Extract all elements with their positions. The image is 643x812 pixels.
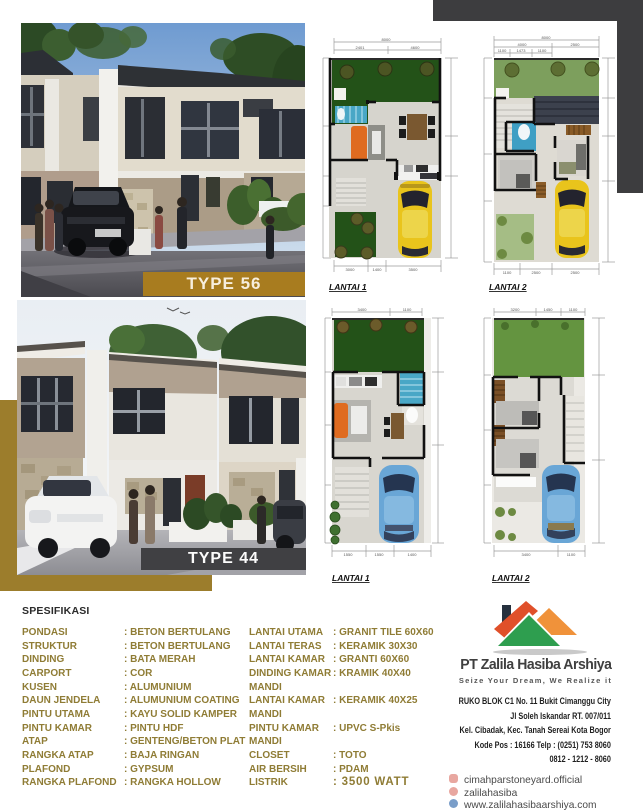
svg-text:1100: 1100 xyxy=(538,48,547,53)
svg-text:1100: 1100 xyxy=(403,307,412,312)
svg-text:3500: 3500 xyxy=(409,267,419,272)
svg-text:2500: 2500 xyxy=(571,270,581,275)
svg-text:3000: 3000 xyxy=(346,267,356,272)
svg-text:1473: 1473 xyxy=(517,48,527,53)
svg-text:2500: 2500 xyxy=(532,270,542,275)
svg-text:LANTAI 2: LANTAI 2 xyxy=(489,282,527,292)
svg-text:3400: 3400 xyxy=(522,552,532,557)
svg-text:3200: 3200 xyxy=(511,307,521,312)
svg-text:1100: 1100 xyxy=(503,270,512,275)
svg-text:1400: 1400 xyxy=(408,552,418,557)
svg-text:1550: 1550 xyxy=(375,552,385,557)
svg-text:LANTAI 2: LANTAI 2 xyxy=(492,573,530,583)
svg-text:1400: 1400 xyxy=(373,267,383,272)
svg-text:1550: 1550 xyxy=(344,552,354,557)
svg-text:2401: 2401 xyxy=(356,45,366,50)
svg-text:8000: 8000 xyxy=(542,36,552,40)
svg-text:4000: 4000 xyxy=(518,42,528,47)
svg-text:2500: 2500 xyxy=(571,42,581,47)
svg-text:1100: 1100 xyxy=(498,48,507,53)
svg-text:1100: 1100 xyxy=(569,307,578,312)
svg-text:8000: 8000 xyxy=(382,37,392,42)
svg-text:3400: 3400 xyxy=(358,307,368,312)
svg-text:4600: 4600 xyxy=(411,45,421,50)
svg-text:1100: 1100 xyxy=(567,552,576,557)
svg-text:LANTAI 1: LANTAI 1 xyxy=(332,573,370,583)
svg-text:LANTAI 1: LANTAI 1 xyxy=(329,282,367,292)
svg-text:1450: 1450 xyxy=(544,307,554,312)
